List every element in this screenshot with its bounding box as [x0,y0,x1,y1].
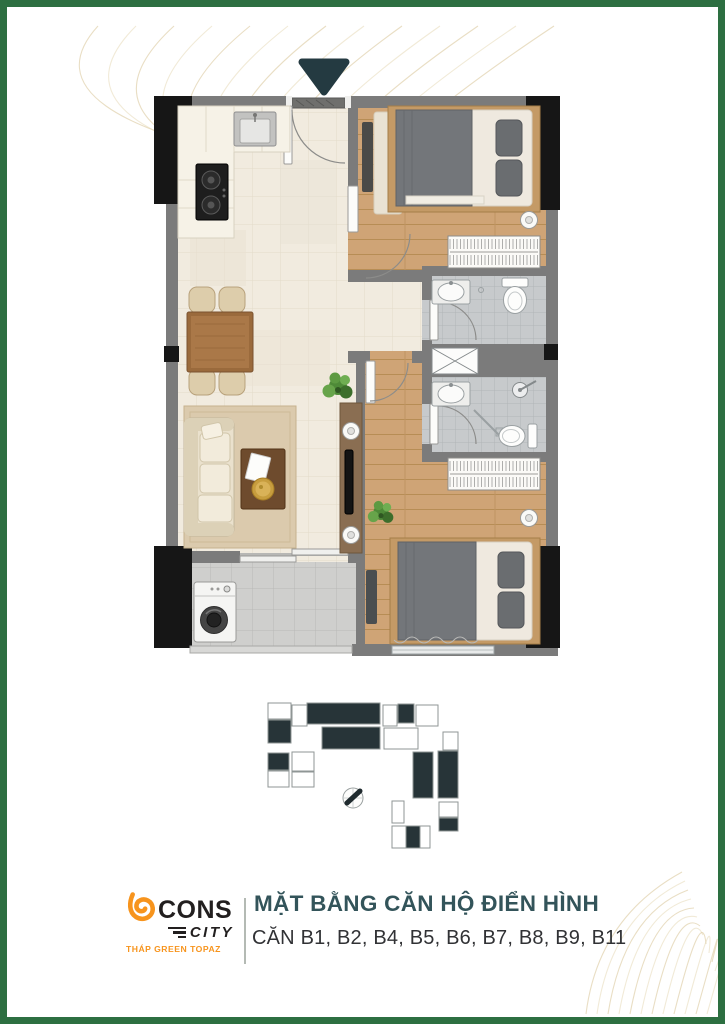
floorplan [150,52,570,664]
compass-icon [343,788,363,808]
bcons-logo: CONS CITY THÁP GREEN TOPAZ [126,891,240,954]
logo-tagline: THÁP GREEN TOPAZ [126,944,240,954]
bedroom-1-closet [362,122,373,192]
logo-cons-text: CONS [158,898,232,923]
bedroom-1-bed [388,106,540,212]
bathroom-2-toilet [499,424,537,448]
footer-divider [244,898,246,964]
logo-speed-lines [168,927,186,938]
wall-lamp [521,212,538,229]
bedroom-1-wardrobe [448,236,540,268]
brochure-page: CONS CITY THÁP GREEN TOPAZ MẶT BẰNG CĂN … [0,0,725,1024]
bathroom-1-vanity [432,280,470,304]
balcony [194,582,236,642]
bathroom-2-vanity [432,382,470,406]
bathroom-1-toilet [502,278,528,314]
balcony-railing [190,646,352,653]
dining-table [187,312,253,372]
bedroom-2-bed [390,538,540,644]
bedroom-2-wardrobe [448,458,540,490]
dining-area [187,287,253,395]
wall-lamp [521,510,538,527]
bcons-b-icon [126,891,156,923]
kitchen-sink [234,112,276,146]
page-title: MẶT BẰNG CĂN HỘ ĐIỂN HÌNH [254,891,614,917]
logo-city-text: CITY [190,925,234,940]
building-keyplan [240,695,480,875]
bedroom-2-closet [366,570,377,624]
sofa [184,418,234,536]
coffee-table [241,449,285,509]
tv [345,450,353,514]
washing-machine [194,582,236,642]
keyplan-blocks [268,703,458,848]
page-subtitle: CĂN B1, B2, B4, B5, B6, B7, B8, B9, B11 [252,927,612,950]
cooktop [196,164,228,220]
entrance-arrow-icon [302,62,346,92]
service-shaft [432,348,478,374]
